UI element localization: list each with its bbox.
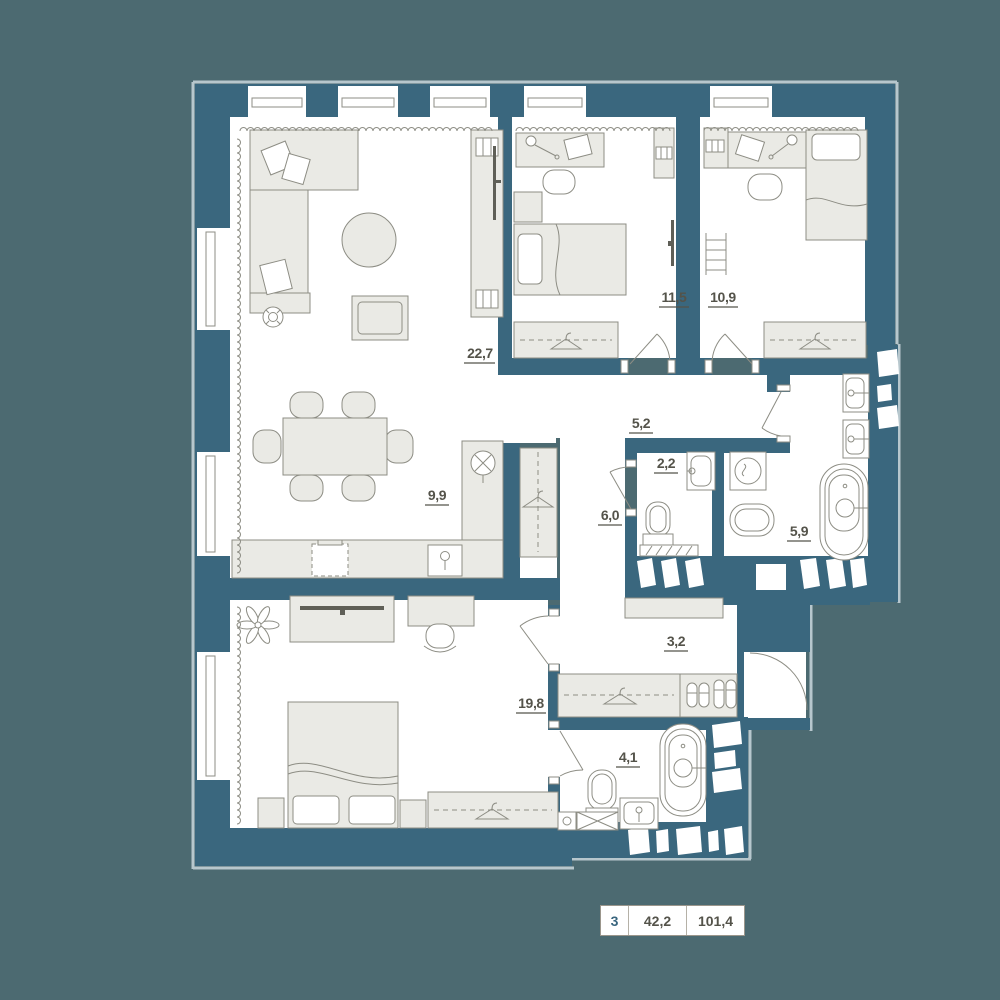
window [430, 86, 490, 117]
nightstand [258, 798, 284, 828]
chair [543, 170, 575, 194]
room-label-corridor: 3,2 [664, 633, 688, 651]
dresser-tv [290, 596, 394, 642]
kitchen-sink-icon [428, 545, 462, 576]
window [710, 86, 772, 117]
double-bed [288, 702, 398, 828]
nightstand [400, 800, 426, 828]
hall-closet [520, 448, 557, 557]
svg-text:2,2: 2,2 [657, 455, 676, 471]
window [197, 652, 230, 780]
bookshelf-icon [476, 290, 498, 308]
legend-total-area: 101,4 [686, 906, 744, 935]
room-label-master: 19,8 [516, 695, 546, 713]
bathtub-icon [820, 464, 868, 560]
svg-text:6,0: 6,0 [601, 507, 620, 523]
nightstand [514, 192, 542, 222]
bidet-icon [730, 504, 774, 536]
room-label-hallway: 5,2 [629, 415, 653, 433]
bathtub-icon [660, 724, 706, 816]
wc-sink-icon [687, 452, 715, 490]
toilet-icon [643, 502, 673, 545]
room-label-kitchen: 9,9 [425, 487, 449, 505]
svg-text:5,2: 5,2 [632, 415, 651, 431]
oven-icon [312, 540, 348, 576]
svg-text:10,9: 10,9 [710, 289, 736, 305]
legend: 3 42,2 101,4 [600, 905, 745, 936]
vanity-sink-icon [620, 798, 658, 829]
svg-text:3,2: 3,2 [667, 633, 686, 649]
sink-icon [843, 374, 869, 412]
window [197, 452, 230, 556]
floor-lamp-icon [263, 307, 283, 327]
floor-plan: 22,7 9,9 11,5 10,9 5,2 2,2 6,0 5,9 3,2 1… [0, 0, 1000, 1000]
floor-hatch [640, 545, 698, 556]
bed [514, 224, 626, 295]
room-label-bathroom: 5,9 [787, 523, 811, 541]
room-label-hall: 6,0 [598, 507, 622, 525]
room-label-ensuite: 4,1 [616, 749, 640, 767]
window [338, 86, 398, 117]
wardrobe [428, 792, 558, 828]
room-label-bedroom2: 10,9 [708, 289, 738, 307]
drain-icon [558, 812, 576, 830]
chair [748, 174, 782, 200]
bookshelf-icon [704, 128, 728, 168]
svg-text:19,8: 19,8 [518, 695, 544, 711]
svg-text:4,1: 4,1 [619, 749, 638, 765]
floor-plan-page: 22,7 9,9 11,5 10,9 5,2 2,2 6,0 5,9 3,2 1… [0, 0, 1000, 1000]
room-label-wc: 2,2 [654, 455, 678, 473]
wardrobe [764, 322, 866, 358]
room-label-living: 22,7 [464, 345, 495, 363]
washer-box-icon [577, 812, 618, 830]
svg-text:11,5: 11,5 [662, 289, 687, 305]
window [248, 86, 306, 117]
desk [408, 596, 474, 626]
window [524, 86, 586, 117]
legend-rooms-count: 3 [601, 906, 628, 935]
bookshelf-icon [654, 128, 674, 178]
armchair [352, 296, 408, 340]
tv-console [471, 130, 503, 317]
washing-machine-icon [730, 452, 766, 490]
wardrobe [514, 322, 618, 358]
svg-text:9,9: 9,9 [428, 487, 447, 503]
svg-text:22,7: 22,7 [467, 345, 493, 361]
bed [806, 130, 867, 240]
svg-text:5,9: 5,9 [790, 523, 809, 539]
sink-icon [843, 420, 869, 458]
room-label-bedroom1: 11,5 [659, 289, 689, 307]
rug [342, 213, 396, 267]
window [197, 228, 230, 330]
legend-living-area: 42,2 [628, 906, 686, 935]
